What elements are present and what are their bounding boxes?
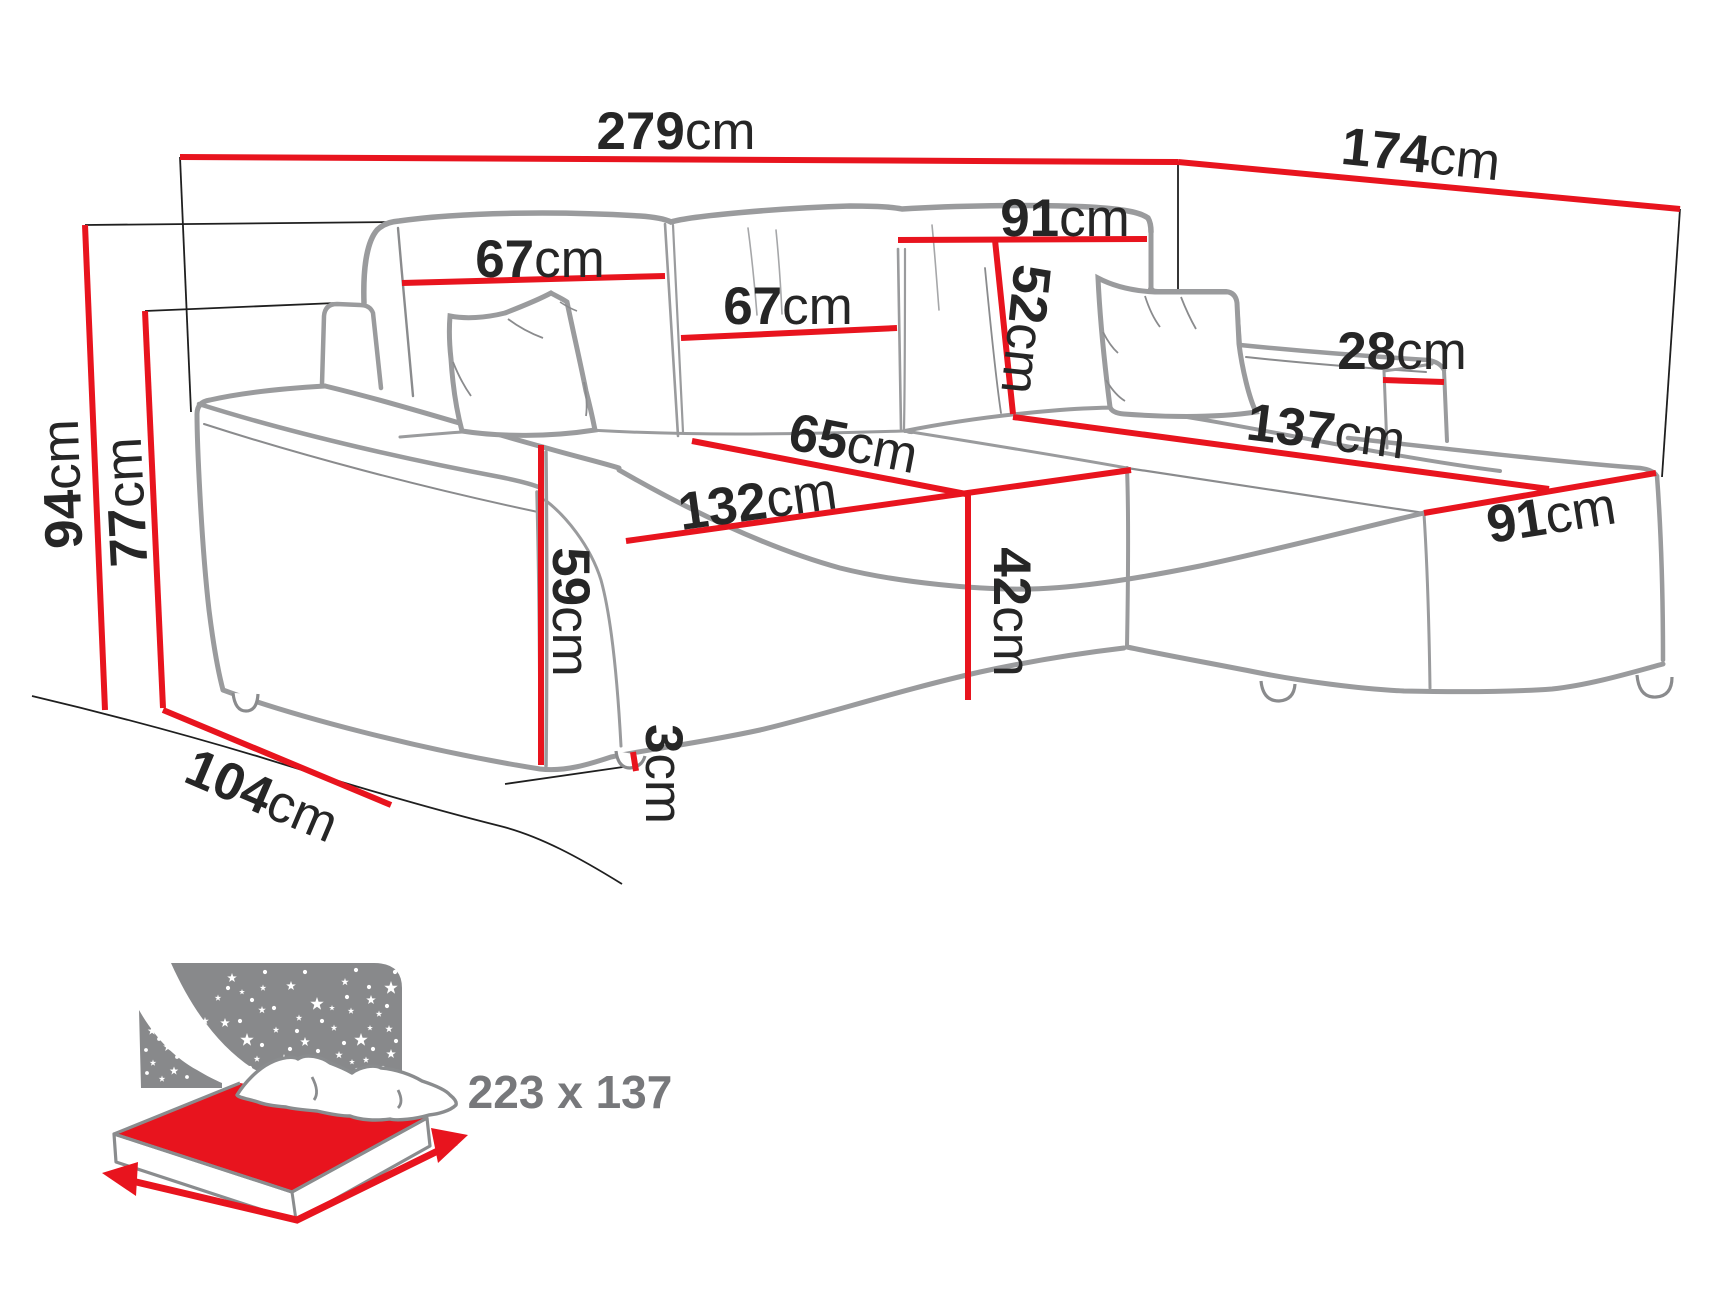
- svg-text:67cm: 67cm: [475, 230, 605, 289]
- svg-text:94cm: 94cm: [31, 418, 94, 550]
- svg-text:223 x 137: 223 x 137: [468, 1066, 673, 1118]
- svg-text:59cm: 59cm: [541, 547, 600, 677]
- svg-text:3cm: 3cm: [634, 724, 693, 824]
- svg-text:91cm: 91cm: [1000, 189, 1130, 248]
- svg-text:67cm: 67cm: [723, 277, 853, 336]
- svg-text:279cm: 279cm: [596, 102, 755, 161]
- svg-text:42cm: 42cm: [982, 547, 1041, 677]
- svg-text:77cm: 77cm: [94, 436, 160, 569]
- svg-text:28cm: 28cm: [1337, 322, 1467, 381]
